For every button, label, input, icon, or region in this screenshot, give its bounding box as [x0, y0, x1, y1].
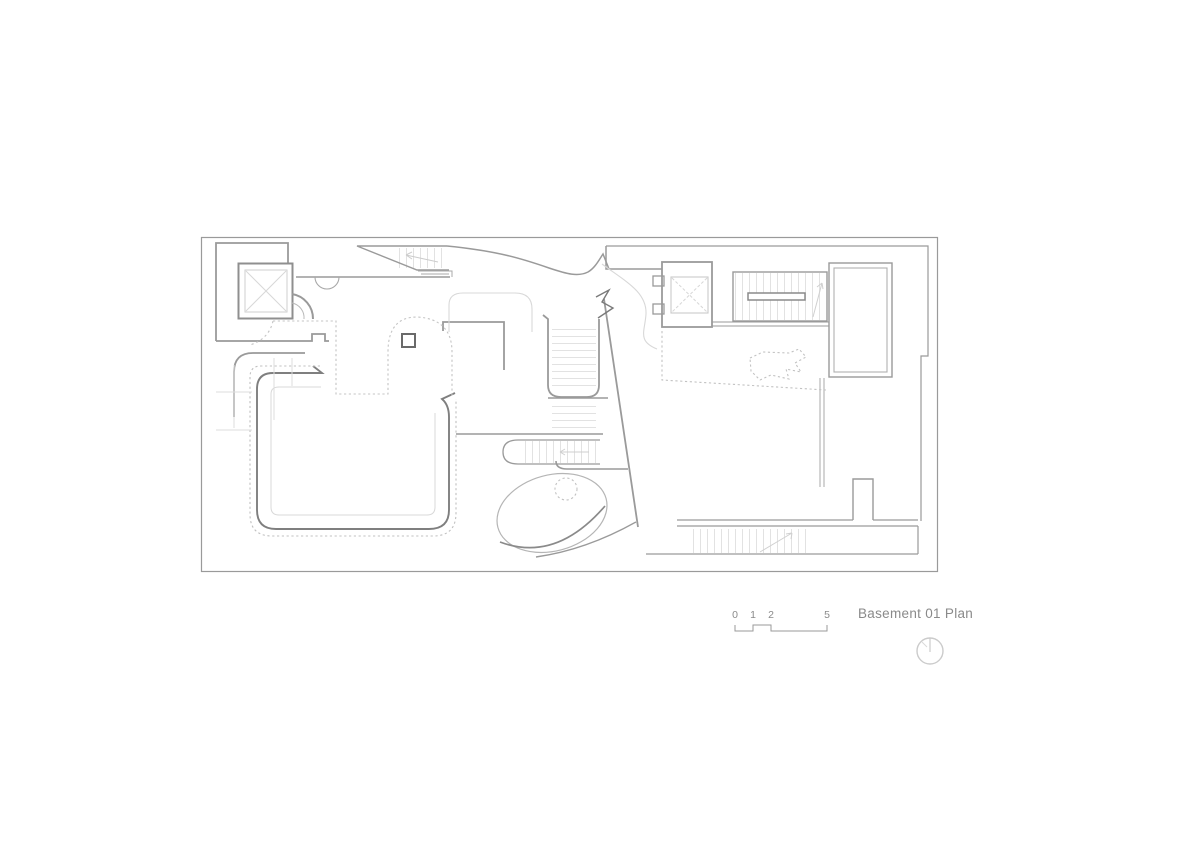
scale-bar: 0 1 2 5 [732, 609, 830, 631]
partition-walls [820, 378, 824, 487]
ellipse-thick-edge [500, 506, 605, 548]
lobby-wall [606, 246, 662, 269]
handrail [748, 293, 805, 300]
elevator-cross-right [672, 278, 707, 312]
scale-label-5: 5 [824, 609, 830, 621]
north-wall-left [296, 277, 450, 289]
column [402, 334, 415, 347]
wall-pillar [853, 479, 873, 520]
elliptical-room [488, 462, 616, 564]
room-wall [257, 366, 455, 529]
stair-room-right [733, 272, 827, 321]
north-arrow-icon [917, 638, 943, 664]
curved-wall-inner [292, 303, 304, 319]
dashed-overhead-right [662, 331, 826, 390]
plan-title: Basement 01 Plan [858, 606, 973, 621]
diagonal [604, 299, 638, 527]
room-wall-inner [834, 268, 887, 372]
core-wall [216, 243, 288, 341]
dashed-line [662, 331, 826, 390]
room-dashed-offset [250, 366, 456, 536]
sweeping-curved-wall [447, 246, 609, 275]
room-inner-face [271, 387, 435, 515]
south-east-wing [646, 479, 918, 554]
folded-wall-tip [596, 290, 613, 318]
ghost-room-outline [449, 293, 532, 332]
u-stairwell [543, 315, 608, 428]
elevator-shaft-right [662, 262, 712, 327]
scale-label-2: 2 [768, 609, 774, 621]
rounded-room-bottom-left [250, 366, 456, 536]
dashed-circle [555, 478, 577, 500]
rounded-l-wall [234, 353, 305, 417]
scale-bar-line [735, 625, 827, 631]
room-top-right [829, 263, 892, 377]
elevator-core-left [216, 243, 329, 345]
core-wall-notch [216, 334, 329, 341]
stair-landing [418, 271, 452, 277]
arched-door [315, 277, 339, 289]
room-wall-outer [829, 263, 892, 377]
entry-stair-top [357, 246, 452, 277]
diagonal-wall [596, 290, 638, 527]
dashed-arch-overhead [273, 317, 452, 397]
ellipse-outline [488, 462, 616, 564]
stair-treads-lower [552, 400, 596, 428]
ghost-corridor-lines [216, 358, 292, 430]
elevator-cross-left [246, 271, 286, 311]
floor-plan-linework [202, 238, 938, 572]
drawing-sheet: 0 1 2 5 Basement 01 Plan [0, 0, 1200, 849]
curved-wall [292, 294, 313, 319]
corridor-wall [712, 322, 829, 326]
stair-treads [552, 326, 596, 392]
basement-floor-plan: 0 1 2 5 Basement 01 Plan [0, 0, 1200, 849]
scale-label-1: 1 [750, 609, 756, 621]
central-stair-run [456, 434, 628, 469]
north-tick [922, 642, 927, 647]
scale-label-0: 0 [732, 609, 738, 621]
dashed-void-outline [750, 349, 806, 380]
stair-treads [688, 529, 812, 553]
